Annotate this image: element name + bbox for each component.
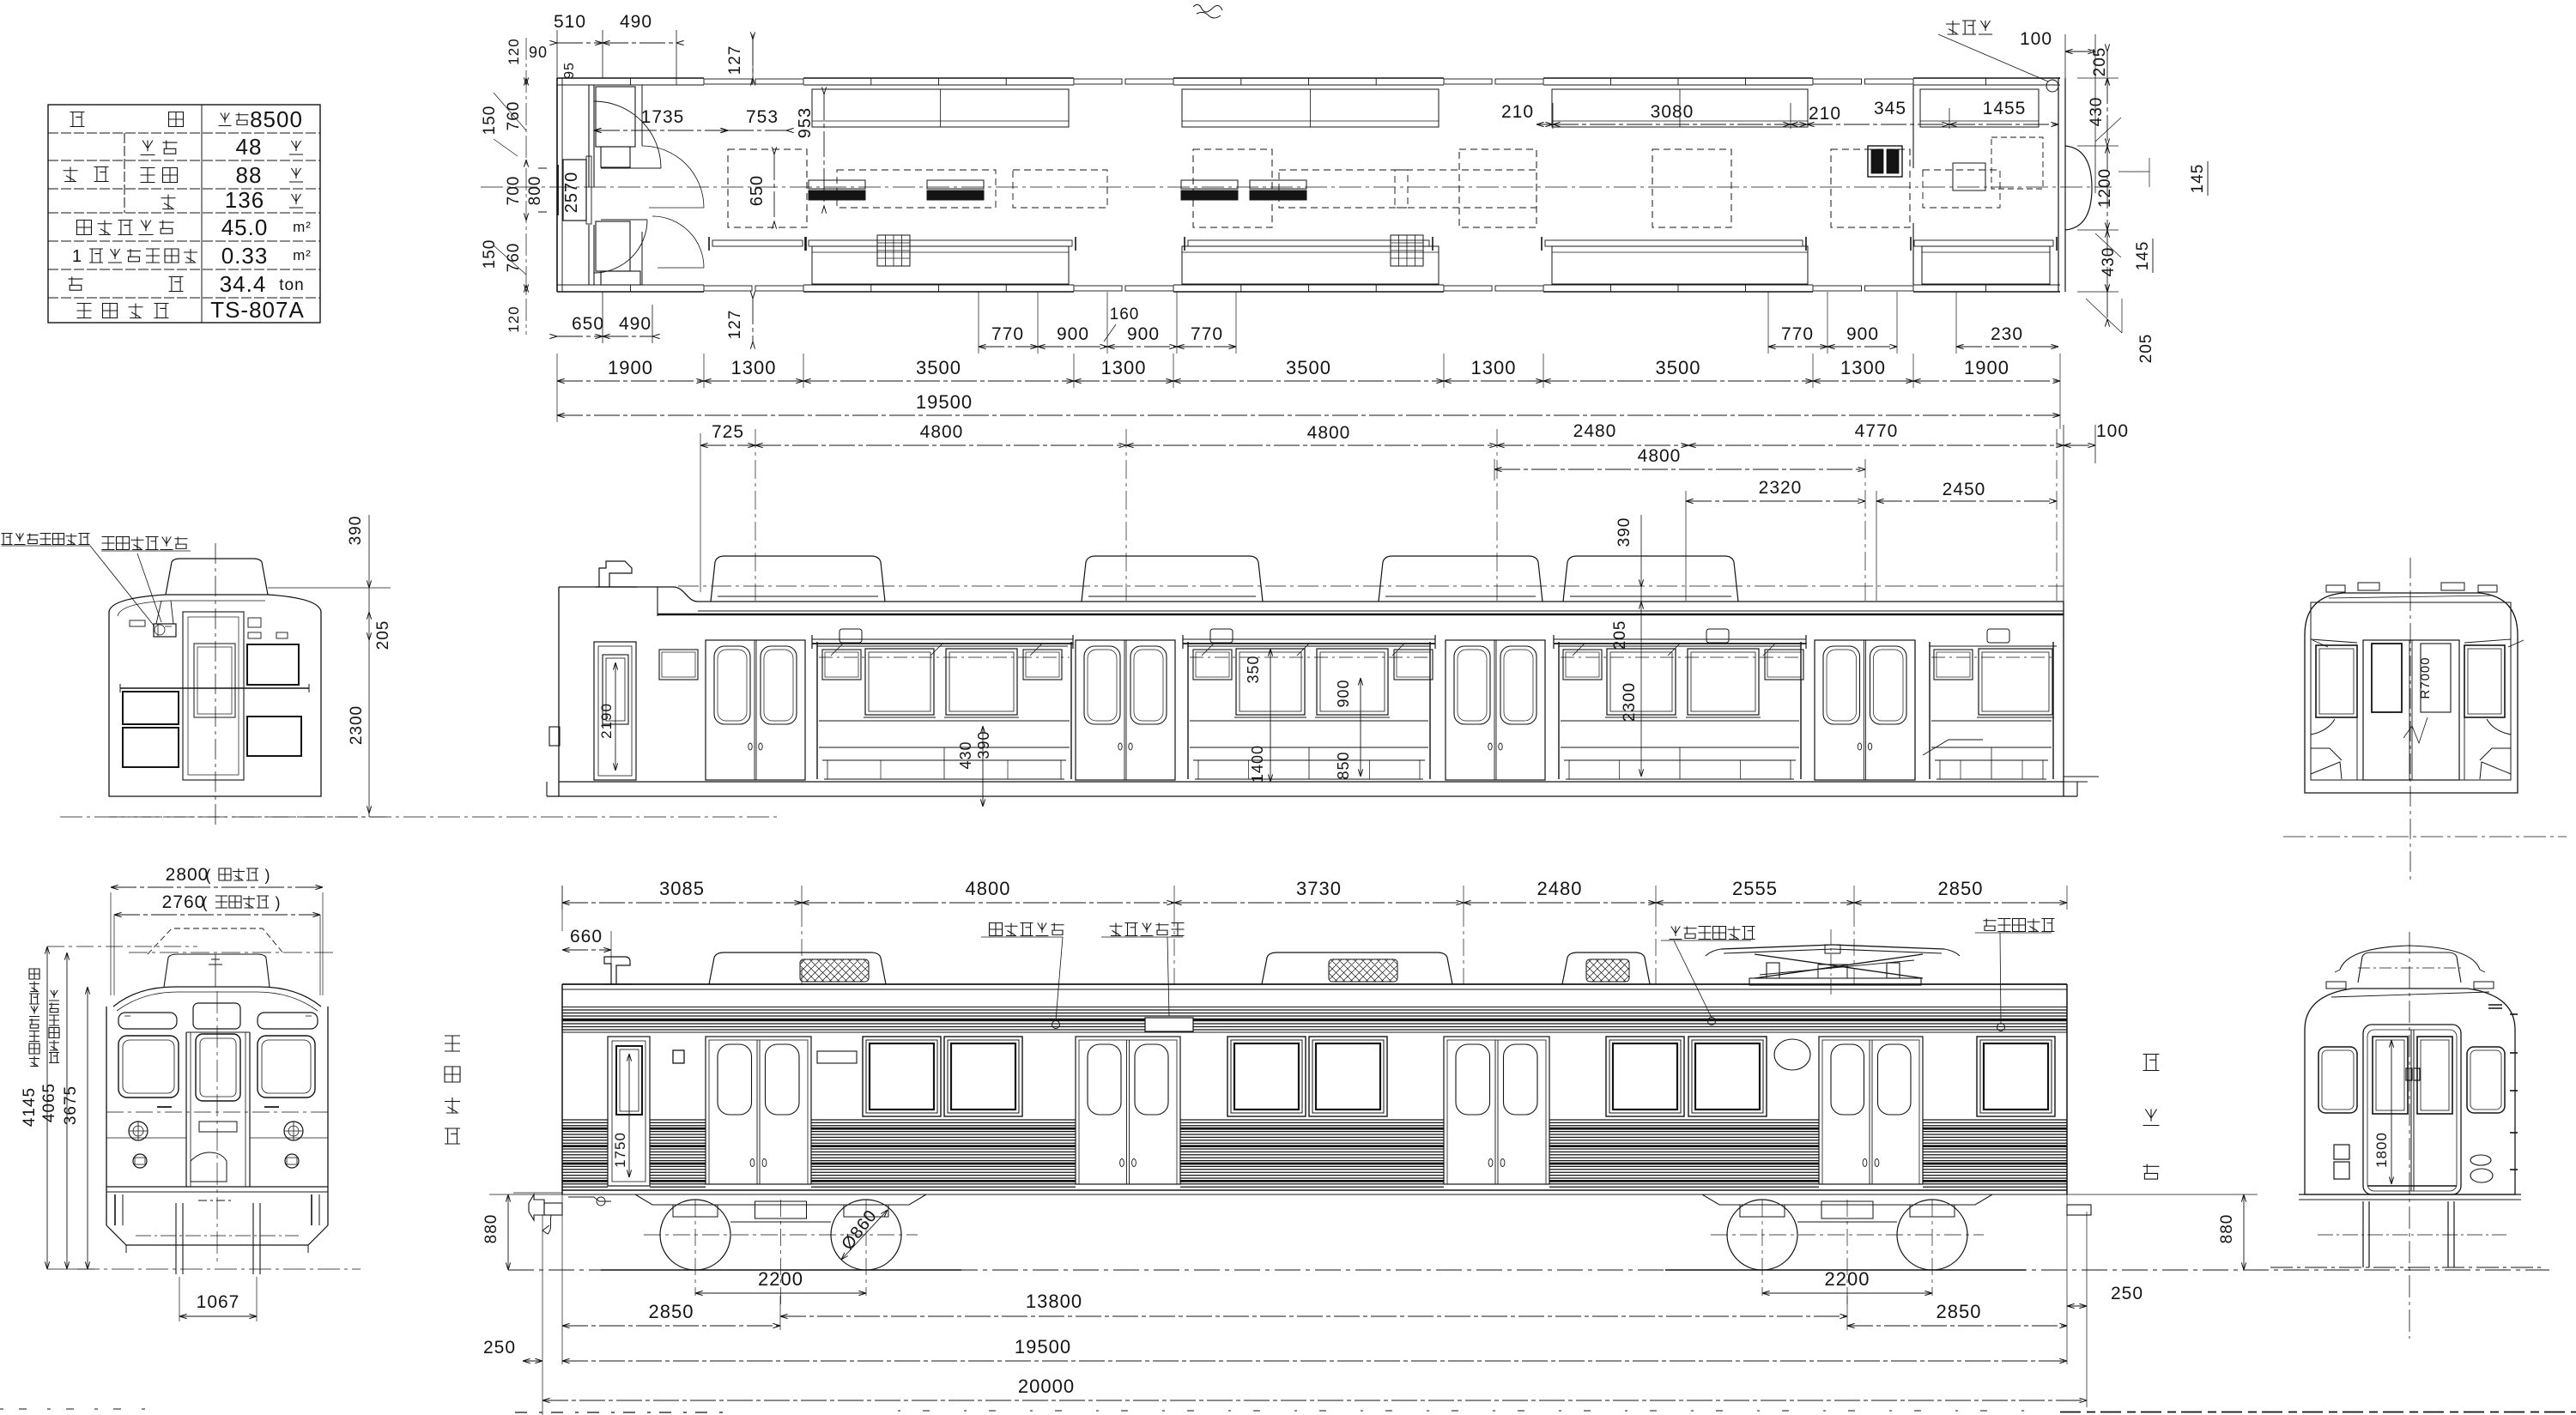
svg-text:650: 650: [748, 175, 767, 206]
svg-text:20000: 20000: [1018, 1376, 1075, 1397]
svg-text:4145: 4145: [21, 1087, 39, 1127]
svg-text:1800: 1800: [2373, 1132, 2390, 1168]
svg-text:100: 100: [2096, 421, 2129, 441]
svg-text:900: 900: [1335, 679, 1352, 707]
svg-text:390: 390: [975, 730, 992, 759]
svg-text:490: 490: [619, 314, 652, 334]
svg-text:2320: 2320: [1759, 478, 1803, 498]
svg-text:2570: 2570: [562, 172, 581, 214]
svg-text:R7000: R7000: [2418, 656, 2433, 698]
svg-text:205: 205: [2137, 334, 2155, 364]
svg-text:650: 650: [572, 314, 604, 334]
svg-text:4800: 4800: [1638, 446, 1682, 466]
svg-text:100: 100: [2020, 29, 2052, 49]
svg-text:490: 490: [620, 12, 652, 32]
svg-text:2450: 2450: [1943, 480, 1986, 499]
svg-text:753: 753: [746, 107, 779, 127]
svg-text:1067: 1067: [197, 1292, 240, 1312]
svg-text:510: 510: [554, 12, 586, 32]
svg-text:): ): [265, 867, 271, 884]
svg-text:880: 880: [2218, 1214, 2236, 1244]
svg-text:205: 205: [2091, 47, 2109, 77]
svg-text:4800: 4800: [966, 878, 1011, 899]
svg-text:2480: 2480: [1537, 878, 1583, 899]
svg-text:1300: 1300: [1101, 357, 1147, 378]
svg-text:1900: 1900: [608, 357, 653, 378]
svg-text:250: 250: [2111, 1284, 2143, 1303]
svg-text:2850: 2850: [1938, 878, 1984, 899]
svg-text:): ): [276, 894, 282, 911]
svg-text:770: 770: [1191, 324, 1223, 344]
svg-text:127: 127: [726, 45, 744, 76]
svg-text:700: 700: [505, 176, 523, 206]
svg-text:2800: 2800: [166, 865, 209, 885]
svg-text:(: (: [203, 894, 209, 911]
svg-text:1300: 1300: [731, 357, 777, 378]
svg-text:3730: 3730: [1296, 878, 1342, 899]
svg-text:m²: m²: [293, 219, 312, 235]
svg-text:770: 770: [1781, 324, 1814, 344]
svg-text:127: 127: [726, 310, 744, 340]
svg-text:8500: 8500: [250, 106, 303, 132]
svg-text:250: 250: [483, 1338, 516, 1358]
svg-text:150: 150: [481, 106, 499, 136]
svg-text:2200: 2200: [758, 1268, 803, 1290]
svg-text:900: 900: [1846, 324, 1879, 344]
svg-text:90: 90: [529, 44, 548, 61]
svg-text:900: 900: [1057, 324, 1089, 344]
svg-text:430: 430: [957, 741, 974, 769]
svg-text:45.0: 45.0: [221, 215, 269, 240]
svg-text:4770: 4770: [1855, 421, 1899, 441]
svg-text:3080: 3080: [1651, 102, 1694, 122]
svg-text:1735: 1735: [641, 107, 685, 127]
svg-text:390: 390: [1615, 517, 1633, 547]
svg-text:230: 230: [1991, 324, 2023, 344]
svg-text:430: 430: [2088, 97, 2106, 127]
svg-text:120: 120: [506, 305, 522, 332]
svg-text:4800: 4800: [1307, 423, 1351, 443]
svg-text:160: 160: [1110, 305, 1140, 324]
svg-text:205: 205: [1611, 620, 1629, 650]
svg-text:120: 120: [506, 38, 522, 64]
svg-text:3675: 3675: [62, 1085, 80, 1125]
svg-text:660: 660: [570, 927, 603, 946]
svg-text:205: 205: [374, 620, 392, 650]
svg-text:2200: 2200: [1825, 1268, 1870, 1290]
svg-text:210: 210: [1809, 104, 1841, 124]
svg-text:48: 48: [236, 134, 263, 160]
svg-text:4800: 4800: [920, 422, 964, 442]
svg-text:1200: 1200: [2096, 168, 2114, 208]
svg-text:19500: 19500: [1015, 1336, 1071, 1358]
svg-text:850: 850: [1335, 751, 1352, 779]
svg-text:1455: 1455: [1983, 99, 2027, 118]
svg-text:880: 880: [482, 1214, 500, 1244]
svg-text:800: 800: [526, 176, 544, 206]
svg-text:136: 136: [225, 187, 264, 213]
svg-text:2480: 2480: [1573, 421, 1617, 441]
svg-text:3500: 3500: [916, 357, 961, 378]
svg-text:m²: m²: [293, 247, 312, 263]
svg-text:770: 770: [991, 324, 1024, 344]
svg-text:34.4: 34.4: [220, 271, 267, 297]
svg-text:3500: 3500: [1656, 357, 1701, 378]
svg-text:2190: 2190: [598, 703, 615, 739]
svg-text:2300: 2300: [348, 705, 366, 745]
svg-text:3085: 3085: [659, 878, 705, 899]
svg-text:725: 725: [712, 422, 744, 442]
svg-text:1400: 1400: [1249, 745, 1266, 783]
svg-text:145: 145: [2134, 241, 2152, 271]
svg-text:19500: 19500: [916, 391, 973, 413]
svg-text:1300: 1300: [1471, 357, 1517, 378]
svg-text:1900: 1900: [1964, 357, 2009, 378]
svg-text:(: (: [206, 867, 212, 884]
svg-text:900: 900: [1127, 324, 1160, 344]
svg-text:150: 150: [481, 239, 499, 269]
svg-text:1750: 1750: [612, 1132, 628, 1168]
svg-text:13800: 13800: [1026, 1291, 1082, 1312]
svg-text:390: 390: [347, 516, 365, 546]
svg-text:2850: 2850: [649, 1301, 694, 1322]
svg-text:2850: 2850: [1937, 1301, 1982, 1322]
svg-text:ton: ton: [279, 276, 304, 294]
svg-text:1300: 1300: [1840, 357, 1886, 378]
svg-text:345: 345: [1874, 99, 1906, 118]
svg-text:88: 88: [236, 162, 263, 188]
svg-text:210: 210: [1501, 102, 1534, 122]
svg-text:1: 1: [72, 247, 82, 266]
svg-text:4065: 4065: [40, 1083, 58, 1122]
svg-text:2555: 2555: [1732, 878, 1778, 899]
svg-text:953: 953: [796, 107, 815, 138]
svg-text:3500: 3500: [1286, 357, 1331, 378]
svg-text:145: 145: [2189, 164, 2207, 194]
svg-text:2300: 2300: [1621, 682, 1639, 722]
svg-text:350: 350: [1245, 655, 1262, 683]
svg-text:95: 95: [562, 62, 577, 79]
svg-text:2760: 2760: [162, 892, 206, 912]
svg-text:0.33: 0.33: [221, 243, 269, 269]
svg-text:TS-807A: TS-807A: [210, 297, 305, 323]
